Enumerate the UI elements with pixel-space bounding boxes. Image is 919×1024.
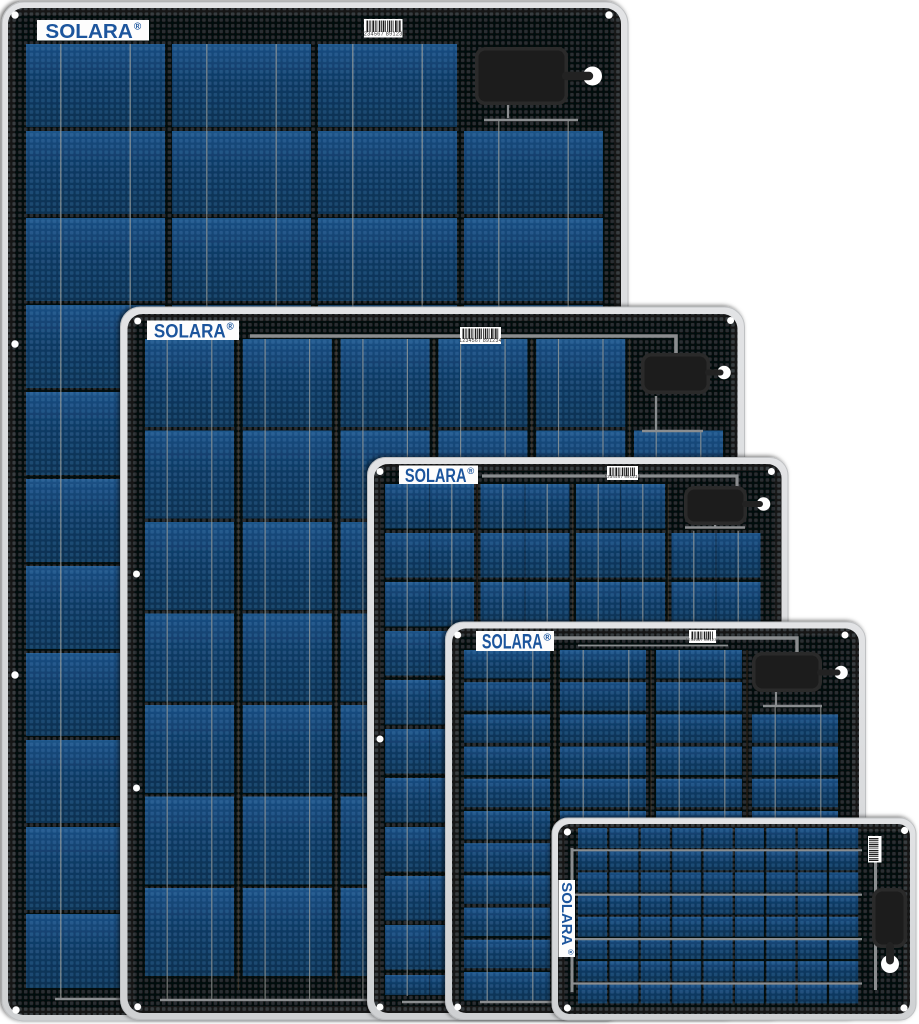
svg-text:1234567 891234: 1234567 891234 xyxy=(459,338,501,344)
svg-text:SOLARA: SOLARA xyxy=(558,882,575,945)
svg-text:1234567 891234: 1234567 891234 xyxy=(686,637,720,642)
svg-text:®: ® xyxy=(467,466,474,477)
svg-text:SOLARA: SOLARA xyxy=(482,631,543,654)
svg-text:®: ® xyxy=(227,322,235,333)
svg-text:®: ® xyxy=(134,22,142,33)
svg-text:1234567 891234: 1234567 891234 xyxy=(360,32,406,38)
svg-text:SOLARA: SOLARA xyxy=(154,321,226,343)
svg-text:SOLARA: SOLARA xyxy=(405,466,467,487)
svg-text:1234567 891234: 1234567 891234 xyxy=(605,474,641,479)
svg-text:®: ® xyxy=(544,631,552,643)
svg-text:SOLARA: SOLARA xyxy=(45,21,132,43)
svg-text:®: ® xyxy=(566,949,575,955)
